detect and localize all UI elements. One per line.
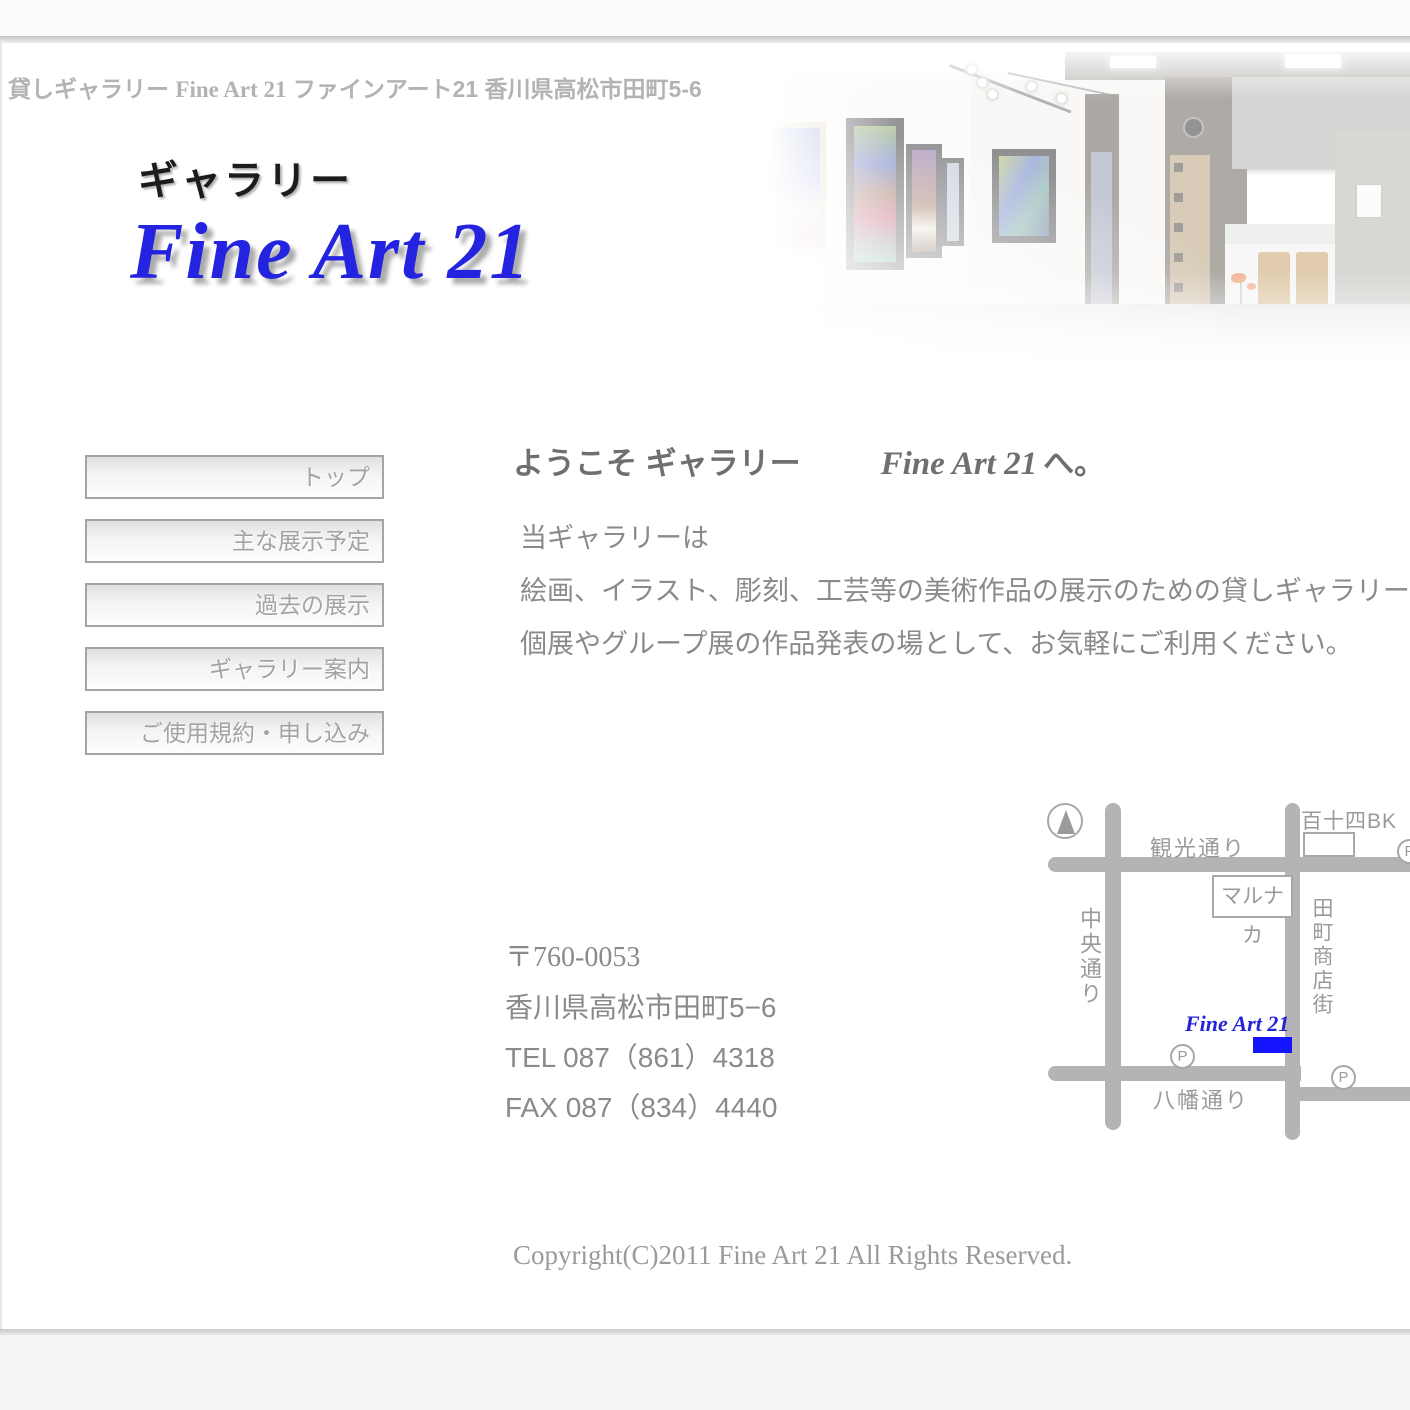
- photo-wood-door: [1170, 155, 1210, 320]
- photo-painting: [770, 122, 826, 248]
- tagline-jp-prefix: 貸しギャラリー: [8, 76, 175, 102]
- site-logo[interactable]: ギャラリー Fine Art 21: [130, 148, 531, 298]
- top-strip: [0, 0, 1410, 36]
- page: 貸しギャラリー Fine Art 21 ファインアート21 香川県高松市田町5-…: [0, 0, 1410, 1410]
- map-label-chuo-dori: 中央通り: [1073, 907, 1105, 1007]
- map-label-bank: 百十四BK: [1301, 805, 1397, 835]
- photo-spotlight: [988, 90, 997, 99]
- top-divider: [0, 36, 1410, 43]
- left-edge-line: [0, 43, 2, 1329]
- photo-painting: [942, 158, 964, 246]
- page-title: ようこそ ギャラリーFine Art 21へ。: [513, 438, 1105, 483]
- photo-doorway: [1085, 94, 1119, 306]
- logo-japanese-text: ギャラリー: [138, 148, 531, 206]
- sidebar-item-terms-application[interactable]: ご使用規約・申し込み: [85, 711, 384, 755]
- north-arrow-triangle: [1057, 810, 1075, 834]
- tagline-en: Fine Art 21: [175, 77, 286, 102]
- photo-painting: [992, 149, 1056, 243]
- sidebar-item-top[interactable]: トップ: [85, 455, 384, 499]
- welcome-japanese: ようこそ ギャラリー: [513, 446, 801, 481]
- map-marunaka-building: マルナカ: [1212, 875, 1293, 918]
- photo-counter: [1225, 224, 1335, 244]
- photo-ceiling-light: [1110, 56, 1156, 68]
- map-road-yahata-east: [1300, 1087, 1410, 1101]
- street-address: 香川県高松市田町5−6: [505, 983, 777, 1033]
- copyright-text: Copyright(C)2011 Fine Art 21 All Rights …: [513, 1240, 1072, 1271]
- photo-door-windows: [1174, 163, 1183, 313]
- phone-number: TEL 087（861）4318: [505, 1033, 777, 1083]
- map-label-kanko-dori: 観光通り: [1150, 831, 1246, 863]
- photo-flower: [1231, 273, 1246, 283]
- photo-ceiling-light: [1285, 54, 1341, 68]
- intro-line: 当ギャラリーは: [520, 512, 1410, 565]
- welcome-english: Fine Art 21: [881, 446, 1037, 482]
- parking-icon: P: [1170, 1044, 1195, 1069]
- photo-flower: [1247, 283, 1256, 290]
- gallery-photo: [770, 52, 1410, 385]
- photo-spotlight: [967, 65, 976, 74]
- logo-english-text: Fine Art 21: [130, 206, 531, 298]
- map-road-tamachi: [1285, 803, 1300, 1140]
- photo-floor: [770, 304, 1410, 385]
- map-gallery-marker: [1253, 1037, 1292, 1053]
- photo-painting: [906, 144, 942, 258]
- map-label-tamachi-shotengai: 田町商店街: [1306, 897, 1336, 1017]
- sidebar-item-gallery-guide[interactable]: ギャラリー案内: [85, 647, 384, 691]
- north-arrow-icon: [1047, 803, 1083, 839]
- photo-spotlight: [978, 78, 987, 87]
- photo-spotlight: [1057, 94, 1066, 103]
- sidebar-item-exhibition-schedule[interactable]: 主な展示予定: [85, 519, 384, 563]
- fax-number: FAX 087（834）4440: [505, 1083, 777, 1133]
- sidebar-item-past-exhibitions[interactable]: 過去の展示: [85, 583, 384, 627]
- bottom-area: [0, 1335, 1410, 1410]
- welcome-suffix: へ。: [1043, 446, 1105, 481]
- map-label-yahata-dori: 八幡通り: [1153, 1083, 1249, 1115]
- access-map: 観光通り 中央通り 田町商店街 八幡通り 百十四BK マルナカ Fine Art…: [1045, 795, 1410, 1140]
- photo-door: [1091, 152, 1112, 304]
- address-block: 〒760-0053 香川県高松市田町5−6 TEL 087（861）4318 F…: [505, 933, 777, 1133]
- parking-icon: P: [1331, 1065, 1356, 1090]
- photo-wall-clock: [1183, 117, 1204, 138]
- tagline-jp-suffix: ファインアート21 香川県高松市田町5-6: [287, 76, 702, 102]
- intro-text: 当ギャラリーは 絵画、イラスト、彫刻、工芸等の美術作品の展示のための貸しギャラリ…: [520, 512, 1410, 671]
- map-gallery-label: Fine Art 21: [1185, 1011, 1289, 1037]
- photo-spotlight: [1027, 82, 1036, 91]
- sidebar-nav: トップ 主な展示予定 過去の展示 ギャラリー案内 ご使用規約・申し込み: [85, 455, 384, 775]
- postal-code: 〒760-0053: [505, 933, 777, 983]
- photo-painting: [846, 118, 904, 270]
- map-road-yahata: [1048, 1066, 1301, 1081]
- map-bank-building: [1303, 832, 1355, 857]
- site-tagline: 貸しギャラリー Fine Art 21 ファインアート21 香川県高松市田町5-…: [8, 70, 702, 104]
- intro-line: 絵画、イラスト、彫刻、工芸等の美術作品の展示のための貸しギャラリーです: [520, 565, 1410, 618]
- photo-notice-paper: [1357, 185, 1381, 217]
- gallery-photo-scene: [770, 52, 1410, 385]
- intro-line: 個展やグループ展の作品発表の場として、お気軽にご利用ください。: [520, 618, 1410, 671]
